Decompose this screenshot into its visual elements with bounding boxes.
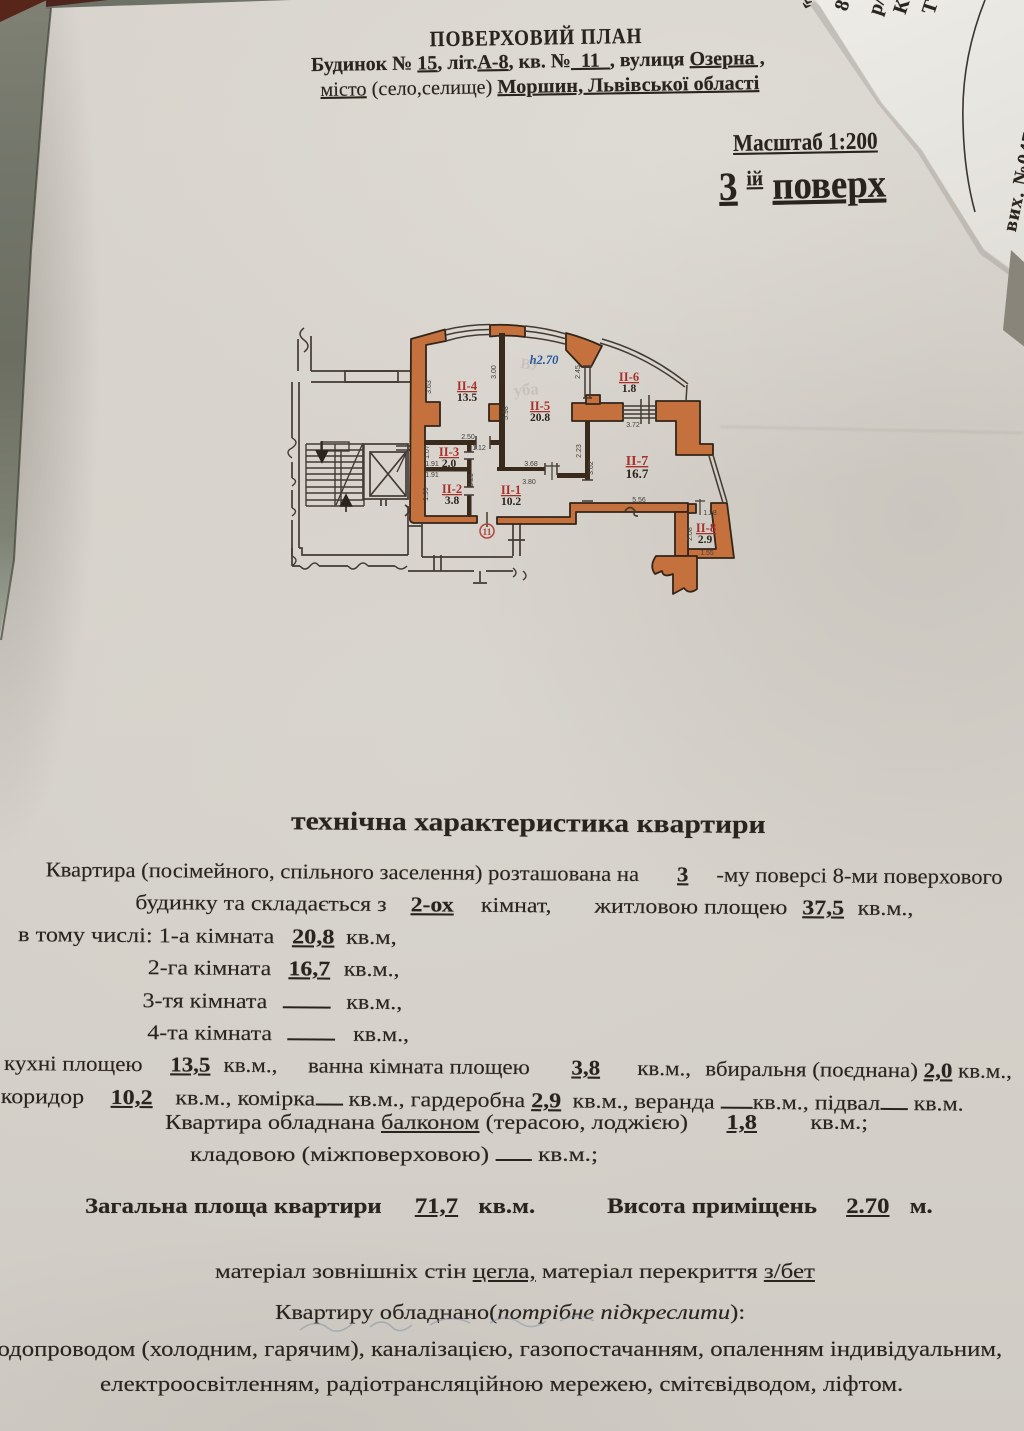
- svg-text:1.07: 1.07: [424, 445, 431, 459]
- svg-text:2.0: 2.0: [442, 458, 457, 470]
- svg-text:3.00: 3.00: [491, 365, 498, 379]
- svg-text:II-6: II-6: [619, 370, 639, 384]
- svg-text:2.23: 2.23: [576, 444, 583, 458]
- svg-text:1.28: 1.28: [703, 510, 717, 517]
- svg-text:уба: уба: [513, 379, 540, 400]
- svg-text:1.12: 1.12: [472, 445, 486, 452]
- svg-text:3.68: 3.68: [524, 461, 538, 468]
- svg-text:5.56: 5.56: [632, 497, 646, 504]
- svg-text:2.08: 2.08: [687, 527, 694, 541]
- svg-text:II-3: II-3: [439, 445, 459, 459]
- svg-text:II-4: II-4: [457, 379, 478, 393]
- svg-text:II-8: II-8: [696, 521, 716, 535]
- svg-text:2.50: 2.50: [461, 434, 475, 441]
- svg-text:5.98: 5.98: [503, 406, 510, 420]
- svg-text:1.55: 1.55: [700, 550, 714, 557]
- svg-text:1.91: 1.91: [425, 461, 439, 468]
- svg-text:3.72: 3.72: [626, 422, 640, 429]
- svg-text:3.8: 3.8: [445, 495, 460, 507]
- svg-text:3.62: 3.62: [588, 461, 595, 475]
- svg-text:II-5: II-5: [530, 399, 550, 413]
- svg-text:20.8: 20.8: [530, 412, 550, 424]
- svg-text:II-2: II-2: [442, 482, 462, 496]
- svg-text:ВУ: ВУ: [519, 356, 541, 375]
- svg-text:13.5: 13.5: [457, 392, 477, 404]
- svg-text:3.63: 3.63: [426, 380, 433, 394]
- svg-text:2.45: 2.45: [575, 365, 582, 379]
- svg-text:1.91: 1.91: [425, 472, 439, 479]
- svg-text:11: 11: [483, 528, 492, 538]
- svg-text:2.9: 2.9: [698, 534, 713, 546]
- svg-text:16.7: 16.7: [626, 466, 649, 481]
- svg-text:3.21: 3.21: [468, 473, 475, 487]
- svg-text:1.99: 1.99: [423, 487, 430, 501]
- svg-text:II-1: II-1: [501, 483, 521, 497]
- svg-text:3.80: 3.80: [522, 479, 536, 486]
- svg-text:10.2: 10.2: [501, 496, 521, 508]
- svg-text:1.8: 1.8: [622, 383, 637, 395]
